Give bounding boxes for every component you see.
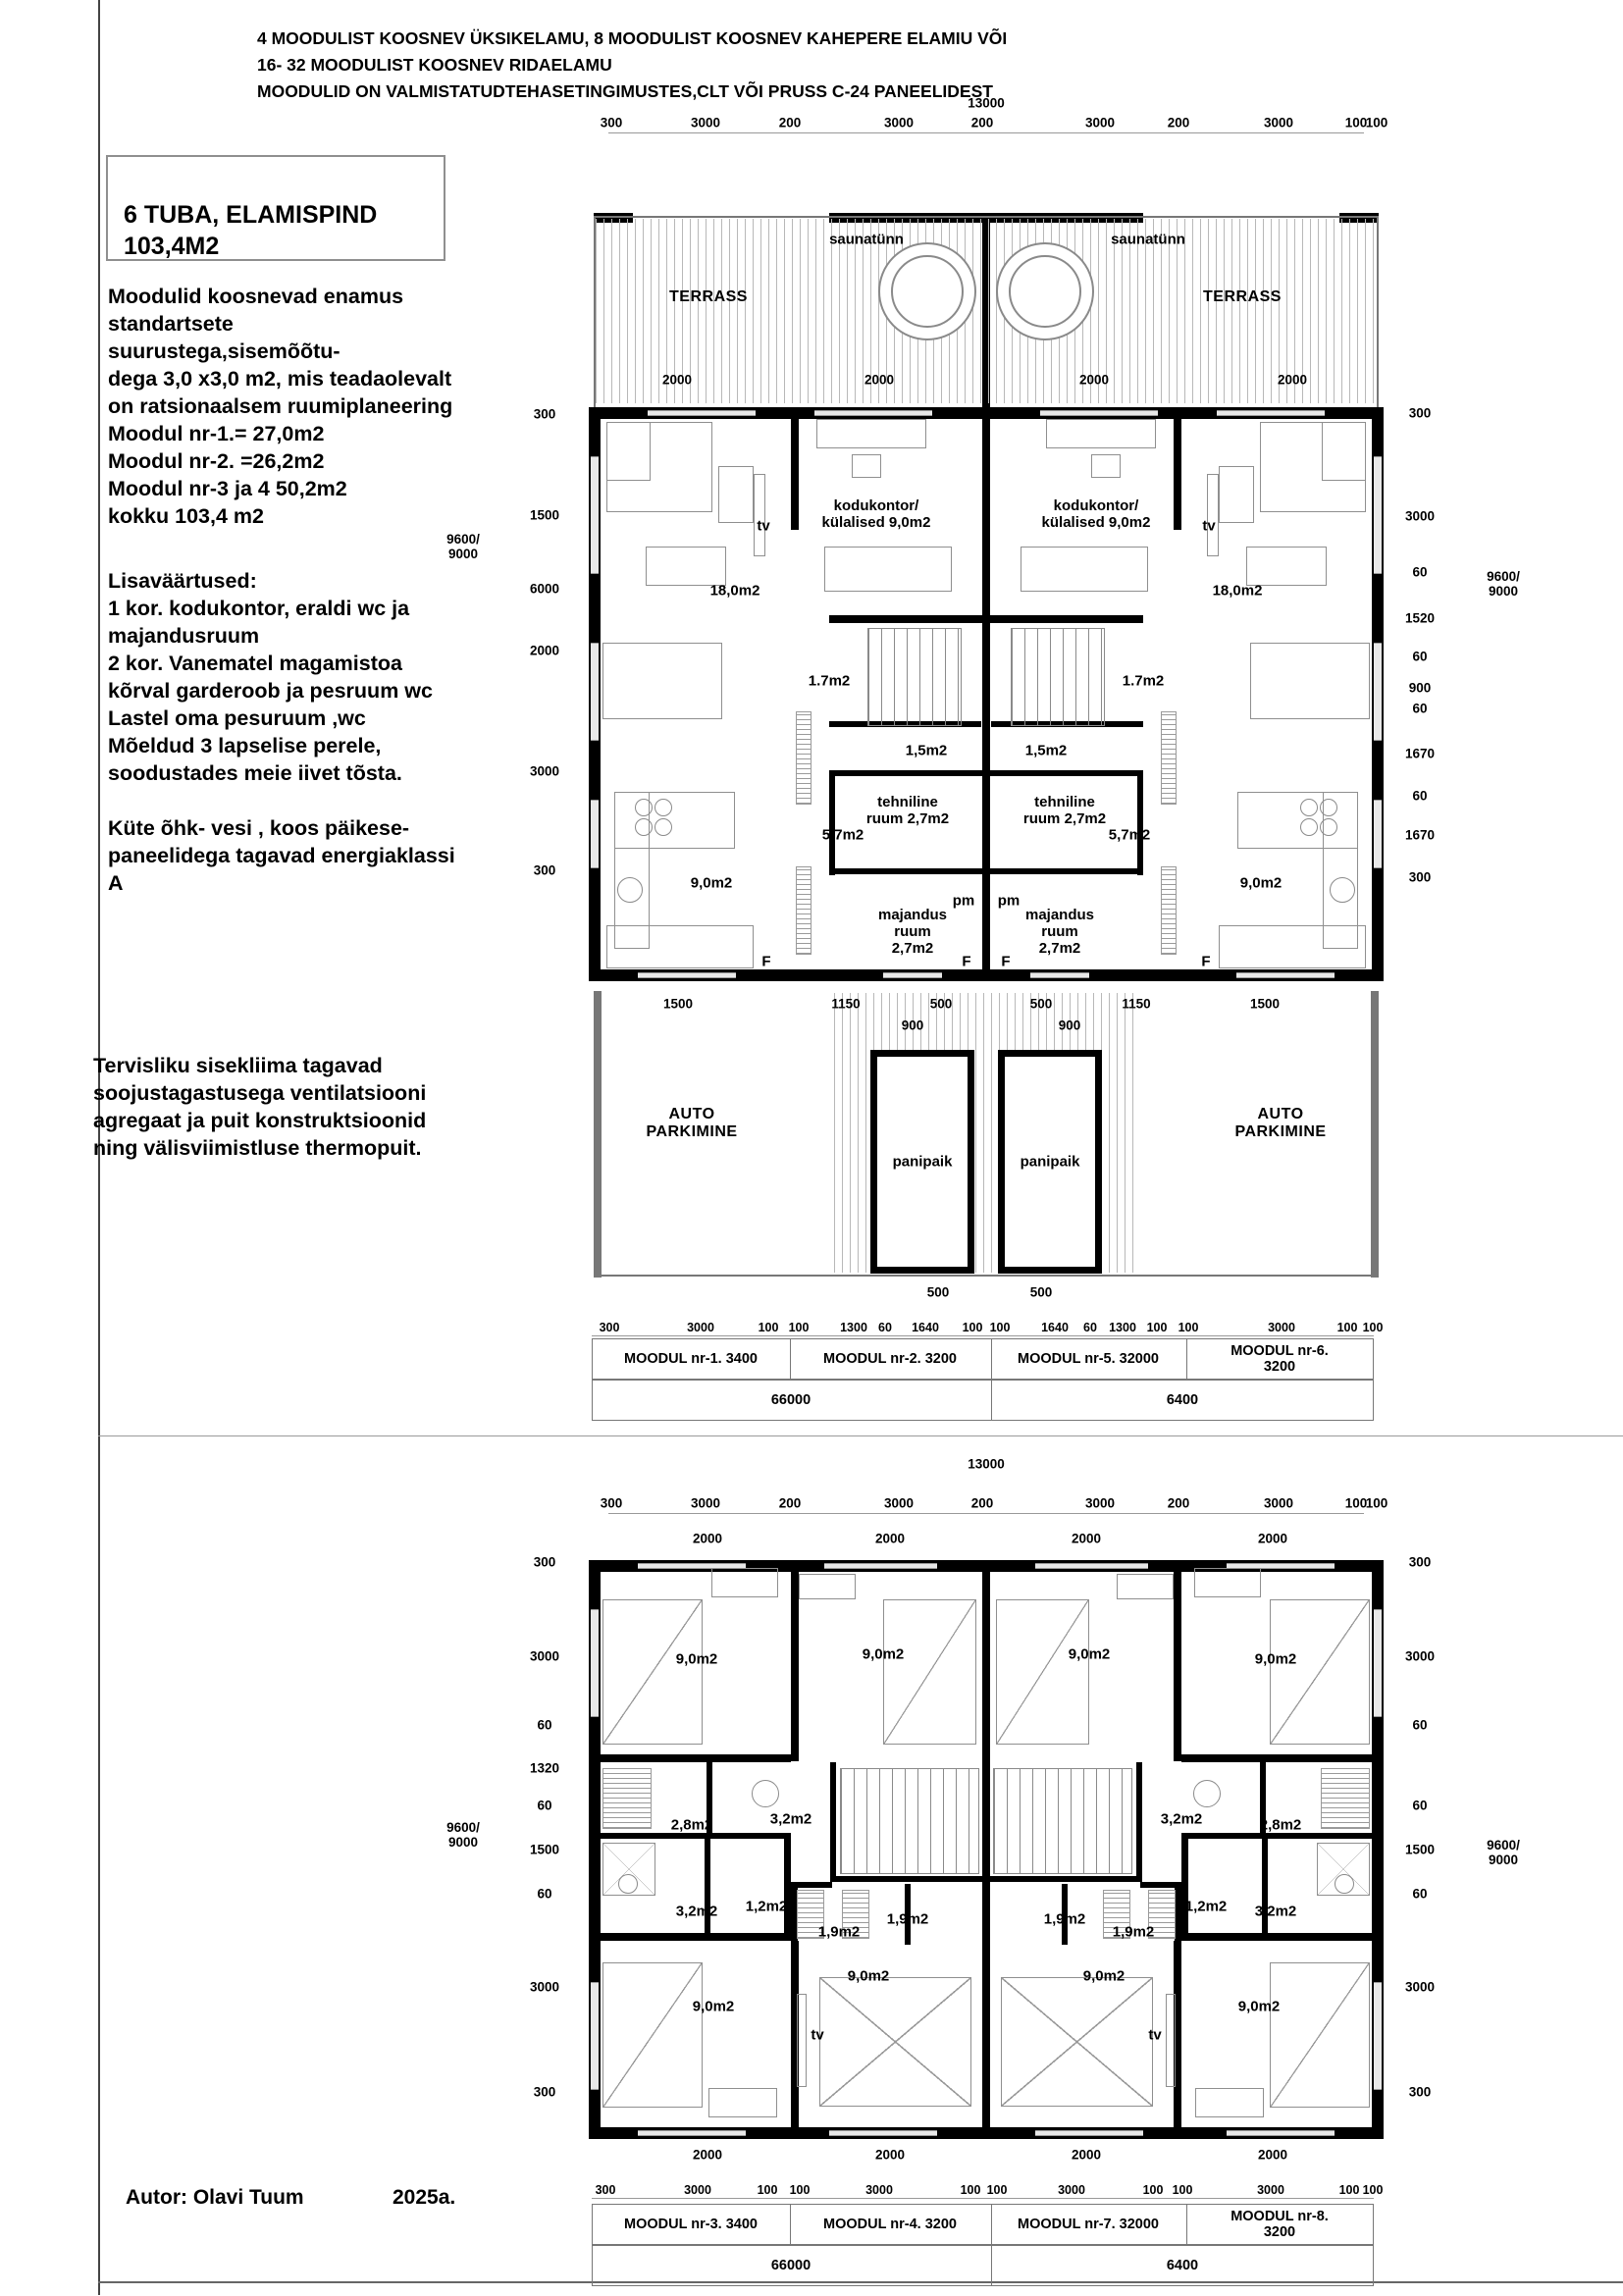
storage-label: panipaik bbox=[893, 1155, 953, 1172]
bedroom-area-label: 9,0m2 bbox=[863, 1647, 905, 1664]
window-opening bbox=[1227, 2130, 1335, 2136]
furniture-outline bbox=[1195, 2088, 1264, 2117]
first-floor-plan: TERRASSTERRASSsaunatünnsaunatünntvtv18,0… bbox=[589, 93, 1384, 1437]
furniture-outline bbox=[1117, 1574, 1174, 1599]
window-opening bbox=[1217, 410, 1325, 416]
total-dimension-label: 6400 bbox=[1167, 2258, 1198, 2273]
shower-room-label: 3,2m2 bbox=[676, 1905, 718, 1921]
car-parking-label: AUTO PARKIMINE bbox=[646, 1106, 737, 1141]
wall bbox=[829, 868, 986, 874]
dimension-label: 100 bbox=[1345, 115, 1368, 130]
hall-area-label: 1.7m2 bbox=[809, 674, 851, 691]
dimension-label: 200 bbox=[971, 115, 994, 130]
dimension-label: 3000 bbox=[1264, 115, 1293, 130]
dimension-label: 200 bbox=[1168, 115, 1190, 130]
dimension-label: 100 bbox=[758, 2183, 778, 2197]
wall bbox=[1181, 1839, 1188, 1941]
fixture-circle bbox=[1330, 877, 1355, 903]
tv-label: tv bbox=[757, 519, 769, 536]
dimension-label: 900 bbox=[1059, 1018, 1081, 1032]
dimension-label: 60 bbox=[537, 1798, 551, 1812]
washer-label: pm bbox=[998, 894, 1021, 911]
sauna-tub-label: saunatünn bbox=[1111, 233, 1185, 249]
bed-outline bbox=[883, 1599, 976, 1745]
furniture-outline bbox=[799, 1574, 856, 1599]
dimension-label: 60 bbox=[1412, 701, 1427, 715]
fixture-circle bbox=[635, 818, 653, 836]
dimension-label: 6000 bbox=[530, 581, 559, 596]
window-opening bbox=[1374, 1982, 1382, 2090]
furniture-outline bbox=[852, 454, 881, 478]
sauna-area-label: 2,8m2 bbox=[671, 1818, 713, 1835]
sauna-area-label: 2,8m2 bbox=[1260, 1818, 1302, 1835]
dimension-label: 100 bbox=[1366, 115, 1388, 130]
technical-room-label: tehniline ruum 2,7m2 bbox=[866, 795, 949, 828]
furniture-outline bbox=[1021, 547, 1148, 592]
dimension-label: 3000 bbox=[1085, 1495, 1115, 1510]
wall bbox=[1181, 1754, 1374, 1762]
window-opening bbox=[1035, 2130, 1143, 2136]
dimension-label: 300 bbox=[1409, 1554, 1432, 1569]
module-table-divider bbox=[991, 2204, 992, 2245]
spec-paragraph-modules: Moodulid koosnevad enamus standartsete s… bbox=[108, 283, 530, 530]
bedroom-area-label: 9,0m2 bbox=[1083, 1969, 1126, 1986]
module-label: MOODUL nr-5. 32000 bbox=[1018, 1351, 1159, 1367]
wall bbox=[982, 1560, 990, 2139]
sauna-tub-inner bbox=[1009, 255, 1081, 328]
bed-outline bbox=[602, 1962, 703, 2108]
window-dimension: 2000 bbox=[1258, 1531, 1287, 1545]
dimension-label: 200 bbox=[779, 115, 802, 130]
dimension-label: 100 bbox=[1143, 2183, 1164, 2197]
dimension-label: 300 bbox=[1409, 869, 1432, 884]
dimension-line bbox=[592, 1335, 1374, 1336]
hall-area-label: 3,2m2 bbox=[770, 1812, 812, 1829]
wall bbox=[599, 1754, 791, 1762]
overall-dimension: 13000 bbox=[968, 95, 1005, 110]
furniture-outline bbox=[711, 1568, 778, 1597]
dimension-label: 100 bbox=[759, 1321, 779, 1334]
fridge-label: F bbox=[1201, 955, 1210, 971]
window-opening bbox=[638, 2130, 746, 2136]
fixture-circle bbox=[1300, 818, 1318, 836]
wall bbox=[1175, 1884, 1181, 1945]
bedroom-area-label: 9,0m2 bbox=[676, 1652, 718, 1669]
wall-line bbox=[1377, 216, 1379, 407]
dimension-label: 1640 bbox=[1041, 1321, 1069, 1334]
dimension-label: 3000 bbox=[530, 763, 559, 778]
dimension-label: 1150 bbox=[1122, 996, 1150, 1011]
dimension-label: 3000 bbox=[1058, 2183, 1085, 2197]
fixture-circle bbox=[654, 799, 672, 816]
wall-line bbox=[1371, 991, 1379, 1278]
hatch-area bbox=[796, 711, 811, 805]
bedroom-area-label: 9,0m2 bbox=[1255, 1652, 1297, 1669]
furniture-outline bbox=[606, 422, 651, 481]
dimension-label: 60 bbox=[1412, 564, 1427, 579]
dimension-label: 3000 bbox=[1405, 1648, 1435, 1663]
bedroom-area-label: 9,0m2 bbox=[693, 2000, 735, 2016]
module-table-divider bbox=[991, 2245, 992, 2286]
bed-outline bbox=[819, 1977, 971, 2107]
window-opening bbox=[591, 800, 599, 868]
dimension-label: 1500 bbox=[530, 1842, 559, 1856]
author-year: 2025a. bbox=[393, 2186, 455, 2210]
module-table-divider bbox=[1186, 2204, 1187, 2245]
module-table-divider bbox=[790, 2204, 791, 2245]
author-name: Autor: Olavi Tuum bbox=[126, 2186, 304, 2210]
window-dimension: 2000 bbox=[1072, 1531, 1101, 1545]
home-office-label: kodukontor/ külalised 9,0m2 bbox=[822, 498, 931, 532]
dimension-label: 300 bbox=[534, 1554, 556, 1569]
tv-label: tv bbox=[1202, 519, 1215, 536]
dimension-label: 1500 bbox=[663, 996, 693, 1011]
dimension-label: 100 bbox=[1173, 2183, 1193, 2197]
dimension-label: 1320 bbox=[530, 1760, 559, 1775]
module-table-divider bbox=[991, 1380, 992, 1421]
dimension-label: 60 bbox=[1412, 649, 1427, 663]
dimension-label: 1670 bbox=[1405, 827, 1435, 842]
wall bbox=[1136, 1762, 1142, 1882]
dimension-label: 60 bbox=[1412, 1886, 1427, 1901]
furniture-outline bbox=[1219, 925, 1366, 968]
dimension-label: 100 bbox=[1147, 1321, 1168, 1334]
wardrobe-area-label: 1,9m2 bbox=[1044, 1912, 1086, 1929]
fixture-circle bbox=[618, 1874, 638, 1894]
dimension-label: 300 bbox=[600, 1321, 620, 1334]
hatch-area bbox=[1321, 1768, 1370, 1829]
furniture-outline bbox=[708, 2088, 777, 2117]
dimension-label: 3000 bbox=[865, 2183, 893, 2197]
fixture-circle bbox=[1193, 1780, 1221, 1807]
utility-room-label: majandus ruum 2,7m2 bbox=[1025, 908, 1094, 957]
furniture-outline bbox=[754, 474, 765, 556]
dimension-label: 3000 bbox=[884, 1495, 914, 1510]
dimension-label: 1670 bbox=[1405, 746, 1435, 760]
furniture-outline bbox=[646, 547, 726, 586]
dimension-label: 100 bbox=[987, 2183, 1008, 2197]
fixture-circle bbox=[1300, 799, 1318, 816]
window-dimension: 2000 bbox=[1258, 2147, 1287, 2162]
wall bbox=[829, 615, 986, 623]
window-dimension: 2000 bbox=[1072, 2147, 1101, 2162]
height-dimension: 9600/ 9000 bbox=[1487, 1838, 1520, 1867]
dimension-label: 900 bbox=[1409, 680, 1432, 695]
module-table bbox=[592, 2245, 1374, 2286]
furniture-outline bbox=[718, 466, 754, 523]
window-opening bbox=[824, 1563, 937, 1569]
dimension-label: 60 bbox=[878, 1321, 892, 1334]
furniture-outline bbox=[1219, 466, 1254, 523]
dimension-label: 100 bbox=[1339, 2183, 1360, 2197]
overall-dimension: 13000 bbox=[968, 1456, 1005, 1471]
stairs-hatch bbox=[867, 628, 962, 726]
furniture-outline bbox=[816, 419, 926, 448]
kitchen-area-label: 9,0m2 bbox=[691, 876, 733, 893]
dimension-label: 500 bbox=[927, 1284, 950, 1299]
fixture-circle bbox=[617, 877, 643, 903]
fixture-circle bbox=[1320, 818, 1337, 836]
window-opening bbox=[1374, 643, 1382, 741]
dimension-label: 100 bbox=[790, 2183, 811, 2197]
wall bbox=[1174, 1560, 1181, 1761]
window-dimension: 2000 bbox=[662, 372, 692, 387]
furniture-outline bbox=[1194, 1568, 1261, 1597]
wall bbox=[829, 770, 986, 776]
fixture-circle bbox=[654, 818, 672, 836]
bedroom-area-label: 9,0m2 bbox=[848, 1969, 890, 1986]
wardrobe-area-label: 1,9m2 bbox=[818, 1925, 861, 1942]
module-table-divider bbox=[790, 1338, 791, 1380]
module-label: MOODUL nr-2. 3200 bbox=[823, 1351, 957, 1367]
dimension-label: 100 bbox=[1345, 1495, 1368, 1510]
bed-outline bbox=[1270, 1962, 1370, 2108]
module-label: MOODUL nr-1. 3400 bbox=[624, 1351, 758, 1367]
wc-area-label: 1,5m2 bbox=[1025, 744, 1068, 760]
sauna-tub-label: saunatünn bbox=[829, 233, 904, 249]
window-dimension: 2000 bbox=[693, 1531, 722, 1545]
window-opening bbox=[1374, 800, 1382, 868]
module-table-divider bbox=[1186, 1338, 1187, 1380]
module-label: MOODUL nr-6. 3200 bbox=[1228, 1343, 1332, 1375]
stairs-hatch bbox=[840, 1768, 979, 1874]
window-opening bbox=[591, 1982, 599, 2090]
bed-outline bbox=[602, 1599, 703, 1745]
storage-label: panipaik bbox=[1021, 1155, 1080, 1172]
wall bbox=[791, 1560, 799, 1761]
dimension-label: 300 bbox=[534, 406, 556, 421]
hatch-area bbox=[1161, 866, 1177, 955]
stairs-hatch bbox=[1011, 628, 1105, 726]
dimension-label: 60 bbox=[1412, 788, 1427, 803]
wall bbox=[836, 1876, 983, 1882]
wall bbox=[1174, 417, 1181, 530]
window-dimension: 2000 bbox=[693, 2147, 722, 2162]
dimension-label: 300 bbox=[534, 862, 556, 877]
utility-room-label: majandus ruum 2,7m2 bbox=[878, 908, 947, 957]
module-table-divider bbox=[991, 1338, 992, 1380]
module-label: MOODUL nr-3. 3400 bbox=[624, 2217, 758, 2232]
dimension-label: 100 bbox=[1366, 1495, 1388, 1510]
dimension-label: 300 bbox=[1409, 2084, 1432, 2099]
hall-area-label: 1.7m2 bbox=[1123, 674, 1165, 691]
tv-label: tv bbox=[811, 2028, 823, 2045]
apartment-summary: 6 TUBA, ELAMISPIND 103,4M2 bbox=[124, 201, 377, 261]
dimension-label: 1500 bbox=[530, 507, 559, 522]
fixture-circle bbox=[635, 799, 653, 816]
wall bbox=[830, 1762, 836, 1882]
living-room-area-label: 18,0m2 bbox=[710, 584, 760, 600]
dimension-label: 900 bbox=[902, 1018, 924, 1032]
wall bbox=[986, 868, 1143, 874]
car-parking-label: AUTO PARKIMINE bbox=[1234, 1106, 1326, 1141]
window-dimension: 2000 bbox=[864, 372, 894, 387]
dimension-label: 300 bbox=[534, 2084, 556, 2099]
wall bbox=[829, 770, 835, 875]
corridor-area-label: 5,7m2 bbox=[1109, 828, 1151, 845]
dimension-label: 100 bbox=[990, 1321, 1011, 1334]
dimension-label: 3000 bbox=[530, 1648, 559, 1663]
living-room-area-label: 18,0m2 bbox=[1213, 584, 1263, 600]
dimension-label: 100 bbox=[1363, 2183, 1384, 2197]
technical-room-label: tehniline ruum 2,7m2 bbox=[1023, 795, 1106, 828]
dimension-label: 1150 bbox=[831, 996, 860, 1011]
dimension-label: 100 bbox=[1337, 1321, 1358, 1334]
furniture-outline bbox=[1250, 643, 1370, 719]
wall bbox=[982, 407, 990, 969]
dimension-label: 200 bbox=[1168, 1495, 1190, 1510]
tv-label: tv bbox=[1148, 2028, 1161, 2045]
dimension-line bbox=[608, 132, 1364, 133]
hatch-area bbox=[1161, 711, 1177, 805]
hatch-area bbox=[602, 1768, 652, 1829]
dimension-label: 3000 bbox=[530, 1979, 559, 1994]
wall bbox=[986, 615, 1143, 623]
spec-paragraph-values: Lisaväärtused: 1 kor. kodukontor, eraldi… bbox=[108, 567, 530, 897]
dimension-label: 60 bbox=[1412, 1717, 1427, 1732]
wc-area-label: 1,5m2 bbox=[906, 744, 948, 760]
dimension-label: 100 bbox=[1363, 1321, 1384, 1334]
window-opening bbox=[638, 972, 736, 978]
dimension-label: 300 bbox=[1409, 405, 1432, 420]
dimension-line bbox=[608, 1513, 1364, 1514]
dimension-label: 200 bbox=[779, 1495, 802, 1510]
dimension-label: 1500 bbox=[1405, 1842, 1435, 1856]
bed-outline bbox=[996, 1599, 1089, 1745]
dimension-line bbox=[592, 2198, 1374, 2199]
bedroom-area-label: 9,0m2 bbox=[1238, 2000, 1281, 2016]
dimension-label: 100 bbox=[789, 1321, 810, 1334]
dimension-label: 3000 bbox=[1085, 115, 1115, 130]
dimension-label: 3000 bbox=[1405, 1979, 1435, 1994]
wall bbox=[705, 1839, 710, 1937]
dimension-label: 3000 bbox=[1268, 1321, 1295, 1334]
window-opening bbox=[1040, 410, 1158, 416]
corridor-area-label: 5,7m2 bbox=[822, 828, 864, 845]
dimension-label: 3000 bbox=[684, 2183, 711, 2197]
dimension-label: 100 bbox=[961, 2183, 981, 2197]
home-office-label: kodukontor/ külalised 9,0m2 bbox=[1042, 498, 1151, 532]
module-table bbox=[592, 1380, 1374, 1421]
furniture-outline bbox=[1091, 454, 1121, 478]
fridge-label: F bbox=[761, 955, 770, 971]
dimension-label: 60 bbox=[537, 1886, 551, 1901]
dimension-label: 500 bbox=[1030, 1284, 1053, 1299]
window-opening bbox=[1236, 972, 1335, 978]
wall bbox=[599, 1933, 791, 1941]
furniture-outline bbox=[1246, 547, 1327, 586]
height-dimension: 9600/ 9000 bbox=[446, 532, 480, 561]
height-dimension: 9600/ 9000 bbox=[1487, 569, 1520, 599]
wall bbox=[784, 1839, 791, 1941]
window-opening bbox=[648, 410, 756, 416]
window-dimension: 2000 bbox=[1278, 372, 1307, 387]
washer-label: pm bbox=[953, 894, 975, 911]
wc-area-label: 1,2m2 bbox=[1185, 1900, 1228, 1916]
dimension-label: 1520 bbox=[1405, 610, 1435, 625]
wall bbox=[989, 1876, 1136, 1882]
dimension-label: 300 bbox=[601, 1495, 623, 1510]
shower-room-label: 3,2m2 bbox=[1255, 1905, 1297, 1921]
spec-paragraph-climate: Tervisliku sisekliima tagavad soojustaga… bbox=[93, 1052, 525, 1162]
dimension-label: 500 bbox=[930, 996, 953, 1011]
furniture-outline bbox=[1046, 419, 1156, 448]
second-floor-plan: 9,0m29,0m29,0m29,0m22,8m22,8m23,2m23,2m2… bbox=[589, 1452, 1384, 2296]
stairs-hatch bbox=[993, 1768, 1132, 1874]
dimension-label: 200 bbox=[971, 1495, 994, 1510]
wall bbox=[986, 770, 1143, 776]
wall bbox=[1137, 770, 1143, 875]
kitchen-area-label: 9,0m2 bbox=[1240, 876, 1283, 893]
window-opening bbox=[591, 643, 599, 741]
dimension-label: 3000 bbox=[1257, 2183, 1284, 2197]
window-opening bbox=[591, 1609, 599, 1717]
dimension-label: 300 bbox=[601, 115, 623, 130]
window-opening bbox=[591, 456, 599, 574]
dimension-label: 1300 bbox=[840, 1321, 867, 1334]
dimension-label: 60 bbox=[1412, 1798, 1427, 1812]
info-box: 6 TUBA, ELAMISPIND 103,4M2 bbox=[106, 155, 445, 261]
bed-outline bbox=[1001, 1977, 1153, 2107]
dimension-label: 1500 bbox=[1250, 996, 1280, 1011]
furniture-outline bbox=[1322, 422, 1366, 481]
window-opening bbox=[1374, 1609, 1382, 1717]
wall bbox=[791, 417, 799, 530]
wall-line bbox=[594, 216, 1379, 218]
fixture-circle bbox=[1335, 1874, 1354, 1894]
terrace-label: TERRASS bbox=[1203, 288, 1282, 306]
dimension-label: 3000 bbox=[1405, 508, 1435, 523]
hatch-area bbox=[796, 866, 811, 955]
bedroom-area-label: 9,0m2 bbox=[1069, 1647, 1111, 1664]
window-dimension: 2000 bbox=[1079, 372, 1109, 387]
height-dimension: 9600/ 9000 bbox=[446, 1820, 480, 1850]
wall-line bbox=[594, 991, 602, 1278]
window-opening bbox=[814, 410, 932, 416]
fixture-circle bbox=[752, 1780, 779, 1807]
window-opening bbox=[883, 972, 942, 978]
dimension-label: 3000 bbox=[1264, 1495, 1293, 1510]
wardrobe-area-label: 1,9m2 bbox=[887, 1912, 929, 1929]
dimension-label: 300 bbox=[596, 2183, 616, 2197]
fixture-circle bbox=[1320, 799, 1337, 816]
dimension-label: 500 bbox=[1030, 996, 1053, 1011]
dimension-label: 3000 bbox=[691, 115, 720, 130]
furniture-outline bbox=[1166, 1994, 1176, 2087]
window-opening bbox=[1374, 456, 1382, 574]
fridge-label: F bbox=[1001, 955, 1010, 971]
furniture-outline bbox=[606, 925, 754, 968]
total-dimension-label: 6400 bbox=[1167, 1392, 1198, 1408]
hall-area-label: 3,2m2 bbox=[1161, 1812, 1203, 1829]
terrace-label: TERRASS bbox=[669, 288, 748, 306]
window-opening bbox=[1035, 1563, 1148, 1569]
window-dimension: 2000 bbox=[875, 2147, 905, 2162]
window-opening bbox=[1030, 972, 1089, 978]
dimension-label: 3000 bbox=[691, 1495, 720, 1510]
dimension-label: 100 bbox=[1178, 1321, 1199, 1334]
dimension-label: 3000 bbox=[884, 115, 914, 130]
dimension-label: 3000 bbox=[687, 1321, 714, 1334]
wc-area-label: 1,2m2 bbox=[746, 1900, 788, 1916]
dimension-label: 60 bbox=[1083, 1321, 1097, 1334]
wall-line bbox=[594, 1275, 1379, 1277]
hatch-area bbox=[596, 219, 1375, 403]
dimension-label: 2000 bbox=[530, 643, 559, 657]
furniture-outline bbox=[1207, 474, 1219, 556]
sheet: { "header": { "lines": "4 MOODULIST KOOS… bbox=[0, 0, 1623, 2295]
furniture-outline bbox=[824, 547, 952, 592]
